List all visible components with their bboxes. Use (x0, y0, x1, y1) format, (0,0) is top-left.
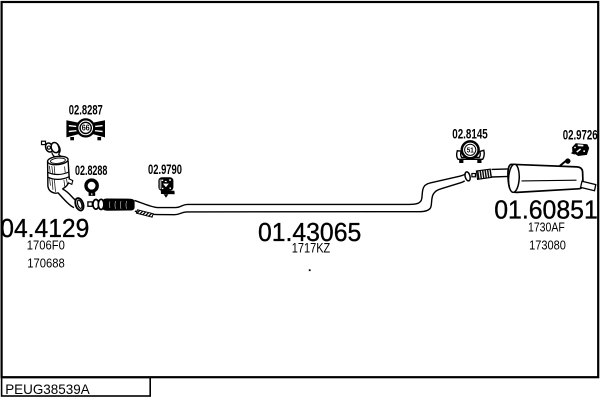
svg-text:1730AF: 1730AF (528, 219, 565, 234)
svg-text:02.8288: 02.8288 (75, 163, 108, 179)
svg-text:173080: 173080 (529, 237, 566, 252)
svg-text:66: 66 (82, 124, 90, 133)
svg-text:02.9790: 02.9790 (148, 162, 182, 178)
svg-text:02.8287: 02.8287 (69, 103, 103, 119)
svg-text:PEUG38539A: PEUG38539A (5, 381, 90, 397)
svg-text:1717KZ: 1717KZ (292, 241, 331, 256)
svg-text:02.9726: 02.9726 (563, 128, 598, 144)
svg-text:170688: 170688 (27, 255, 65, 270)
svg-text:51: 51 (467, 146, 474, 155)
svg-text:1706F0: 1706F0 (27, 238, 65, 253)
